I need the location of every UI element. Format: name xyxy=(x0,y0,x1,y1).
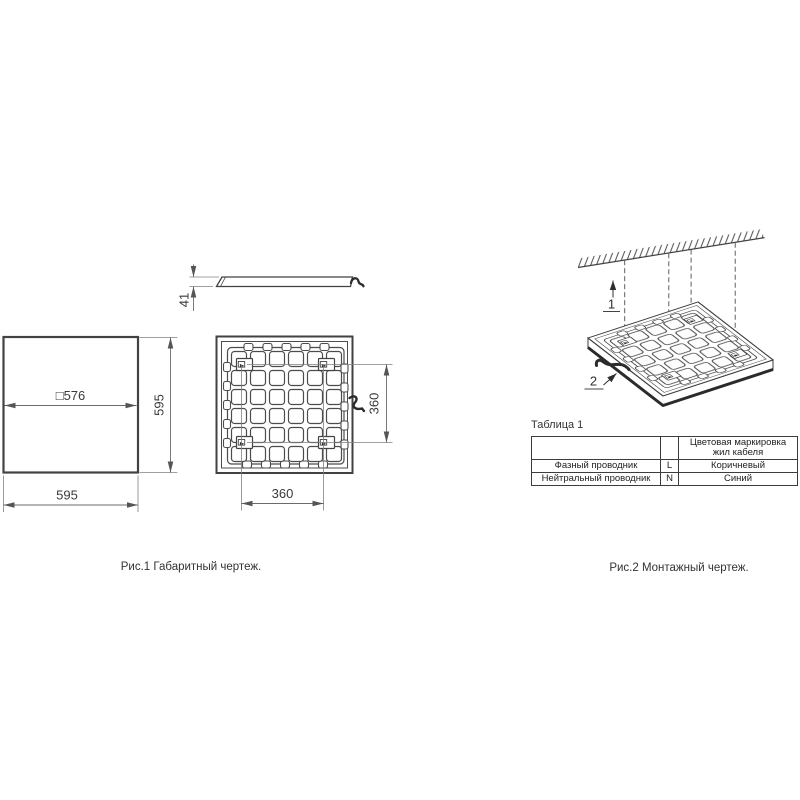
callout-1-suspension: 1 xyxy=(603,281,620,312)
fig1-front-view: □576 595 595 xyxy=(4,337,178,512)
header-cell-empty xyxy=(661,437,679,460)
panel-front-outline xyxy=(4,337,139,473)
dim-label-595-width: 595 xyxy=(56,488,78,503)
fig1-caption: Рис.1 Габаритный чертеж. xyxy=(121,561,261,573)
fig1-back-view: 360 360 xyxy=(217,337,393,511)
fig1-side-view: 41 xyxy=(177,265,364,312)
callout-1-label: 1 xyxy=(608,297,615,312)
drawing-sheet: 41 □576 595 595 xyxy=(0,0,800,800)
dim-41-extension-lines xyxy=(190,277,220,287)
ceiling-hatch xyxy=(577,229,765,268)
conductor-name: Фазный проводник xyxy=(532,460,661,473)
dim-label-41: 41 xyxy=(177,293,192,307)
table-header-row: Цветовая маркировка жил кабеля xyxy=(532,437,798,460)
dim-label-360-vertical: 360 xyxy=(367,393,382,415)
header-cell-empty xyxy=(532,437,661,460)
dim-label-595-height: 595 xyxy=(152,394,167,416)
conductor-code: L xyxy=(661,460,679,473)
conductor-code: N xyxy=(661,473,679,486)
callout-2-label: 2 xyxy=(590,374,597,389)
conductor-color: Коричневый xyxy=(679,460,798,473)
panel-profile xyxy=(217,277,353,287)
table-row-neutral: Нейтральный проводник N Синий xyxy=(532,473,798,486)
power-cable-side xyxy=(351,278,364,286)
callout-2-luminaire: 2 xyxy=(585,374,617,390)
conductor-name: Нейтральный проводник xyxy=(532,473,661,486)
dim-label-576: □576 xyxy=(56,388,86,403)
technical-drawing-canvas: 41 □576 595 595 xyxy=(0,0,800,800)
fig2-mounting-view: 1 2 xyxy=(577,229,773,406)
table1-title: Таблица 1 xyxy=(531,419,583,431)
conductor-color: Синий xyxy=(679,473,798,486)
dim-label-360-horizontal: 360 xyxy=(272,486,294,501)
header-cell-color-marking: Цветовая маркировка жил кабеля xyxy=(679,437,798,460)
fig2-caption: Рис.2 Монтажный чертеж. xyxy=(609,562,748,574)
panel-iso-top-face xyxy=(588,302,773,396)
table-row-phase: Фазный проводник L Коричневый xyxy=(532,460,798,473)
wiring-color-table: Цветовая маркировка жил кабеля Фазный пр… xyxy=(531,436,798,486)
